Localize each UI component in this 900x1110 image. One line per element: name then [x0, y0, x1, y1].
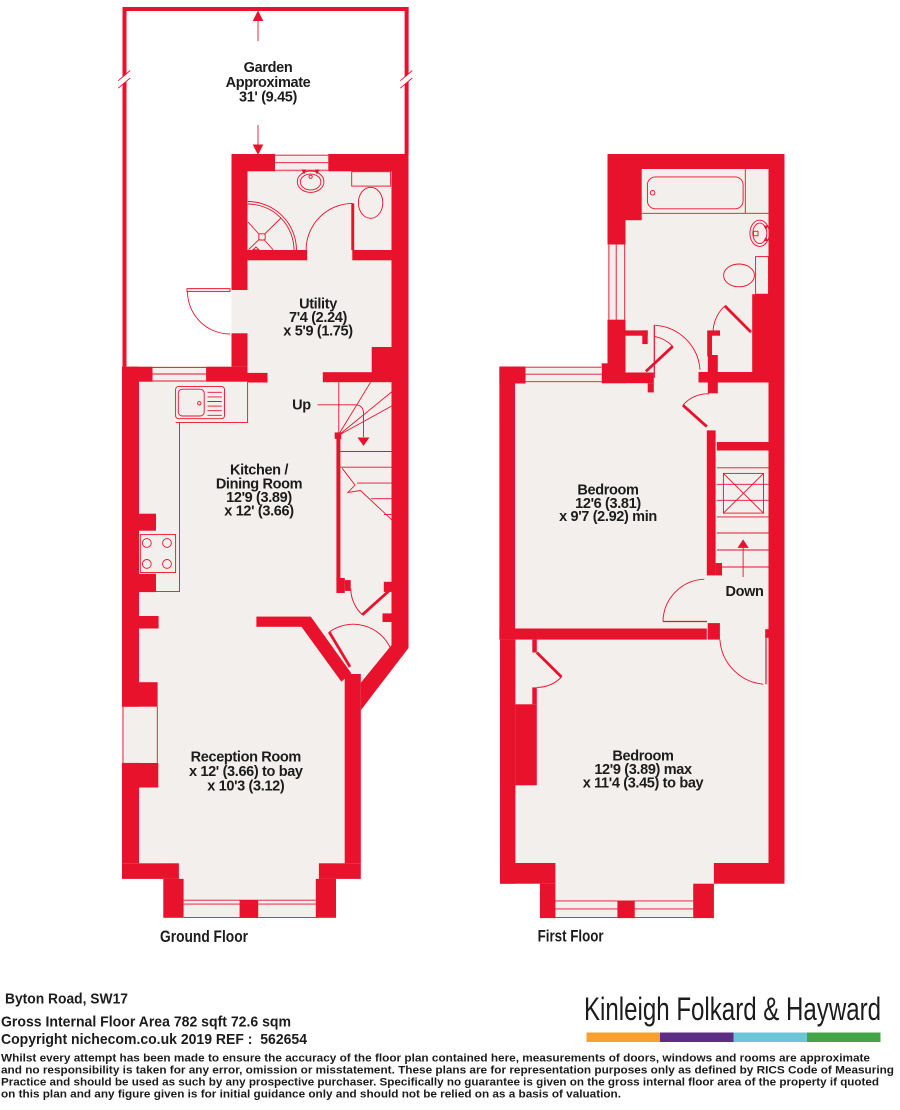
svg-text:x 9'7 (2.92) min: x 9'7 (2.92) min — [559, 509, 657, 525]
svg-text:Ground Floor: Ground Floor — [160, 928, 248, 946]
svg-text:on this plan and any figure gi: on this plan and any figure given is for… — [1, 1089, 621, 1101]
svg-text:First Floor: First Floor — [538, 928, 604, 946]
svg-text:x 5'9 (1.75): x 5'9 (1.75) — [283, 323, 353, 339]
svg-text:and no responsibility is taken: and no responsibility is taken for any e… — [1, 1065, 894, 1077]
svg-text:Down: Down — [725, 584, 763, 600]
svg-text:Practice and should be used as: Practice and should be used as such by a… — [1, 1077, 879, 1089]
svg-text:Up: Up — [292, 398, 311, 414]
svg-text:x 12' (3.66): x 12' (3.66) — [224, 504, 294, 520]
svg-text:Kinleigh Folkard & Hayward: Kinleigh Folkard & Hayward — [584, 991, 881, 1027]
svg-text:Garden: Garden — [244, 60, 293, 76]
svg-text:x 11'4 (3.45) to bay: x 11'4 (3.45) to bay — [583, 776, 704, 792]
svg-text:Approximate: Approximate — [226, 75, 311, 91]
svg-text:x 10'3 (3.12): x 10'3 (3.12) — [207, 779, 285, 795]
svg-text:Copyright nichecom.co.uk 2019: Copyright nichecom.co.uk 2019 REF : 5626… — [1, 1031, 308, 1048]
svg-text:Byton Road, SW17: Byton Road, SW17 — [5, 991, 128, 1008]
svg-text:Gross Internal Floor Area 782: Gross Internal Floor Area 782 sqft 72.6 … — [1, 1014, 291, 1031]
svg-text:Whilst every attempt has been: Whilst every attempt has been made to en… — [1, 1053, 870, 1065]
svg-text:31' (9.45): 31' (9.45) — [239, 89, 298, 105]
